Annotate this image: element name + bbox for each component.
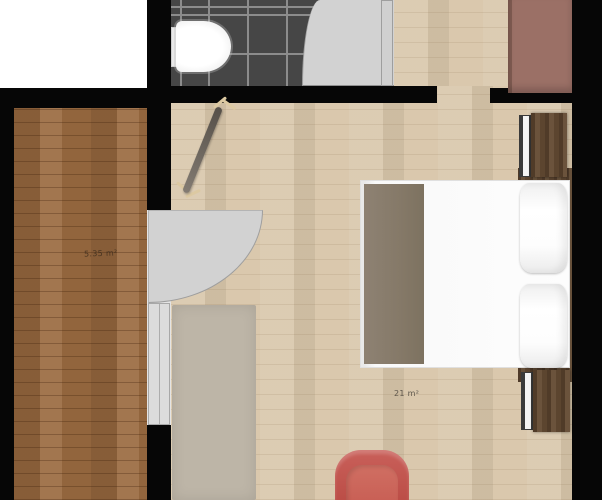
nightstand-top[interactable] [531, 113, 567, 177]
bed-blanket [364, 184, 424, 364]
bedroom-door-leaf[interactable] [148, 303, 170, 425]
wall-right [572, 0, 602, 500]
toilet-bowl [176, 21, 231, 72]
bedroom-area-label: 21 m² [394, 389, 419, 398]
wall-divider-upper [147, 0, 171, 210]
nightstand-bottom[interactable] [533, 370, 570, 432]
wall-left [0, 88, 14, 500]
floor-plan-canvas: 5.35 m² 21 m² [0, 0, 602, 500]
armchair-seat [346, 465, 398, 500]
bathroom-door-leaf[interactable] [381, 0, 393, 86]
wall-hallway-top [0, 88, 147, 108]
armchair[interactable] [335, 450, 409, 500]
rug[interactable] [172, 305, 256, 500]
hallway-area-label: 5.35 m² [84, 248, 118, 258]
pillow [520, 284, 567, 368]
wall-bedroom-top-left [171, 86, 437, 103]
pillow [520, 183, 567, 273]
wardrobe[interactable] [508, 0, 572, 93]
wall-divider-lower [147, 425, 171, 500]
hallway-floor [14, 108, 147, 500]
